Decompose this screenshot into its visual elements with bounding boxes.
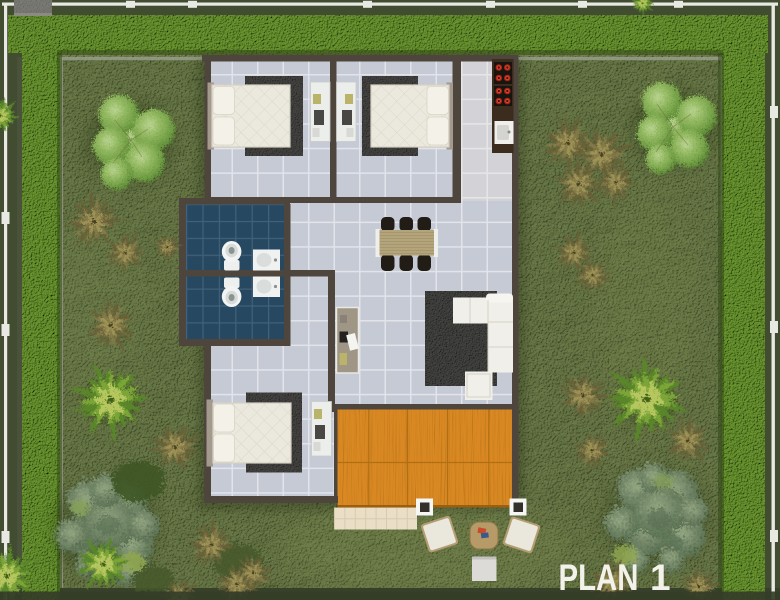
svg-text:PLAN: PLAN [559, 557, 639, 598]
svg-text:1: 1 [650, 557, 671, 598]
